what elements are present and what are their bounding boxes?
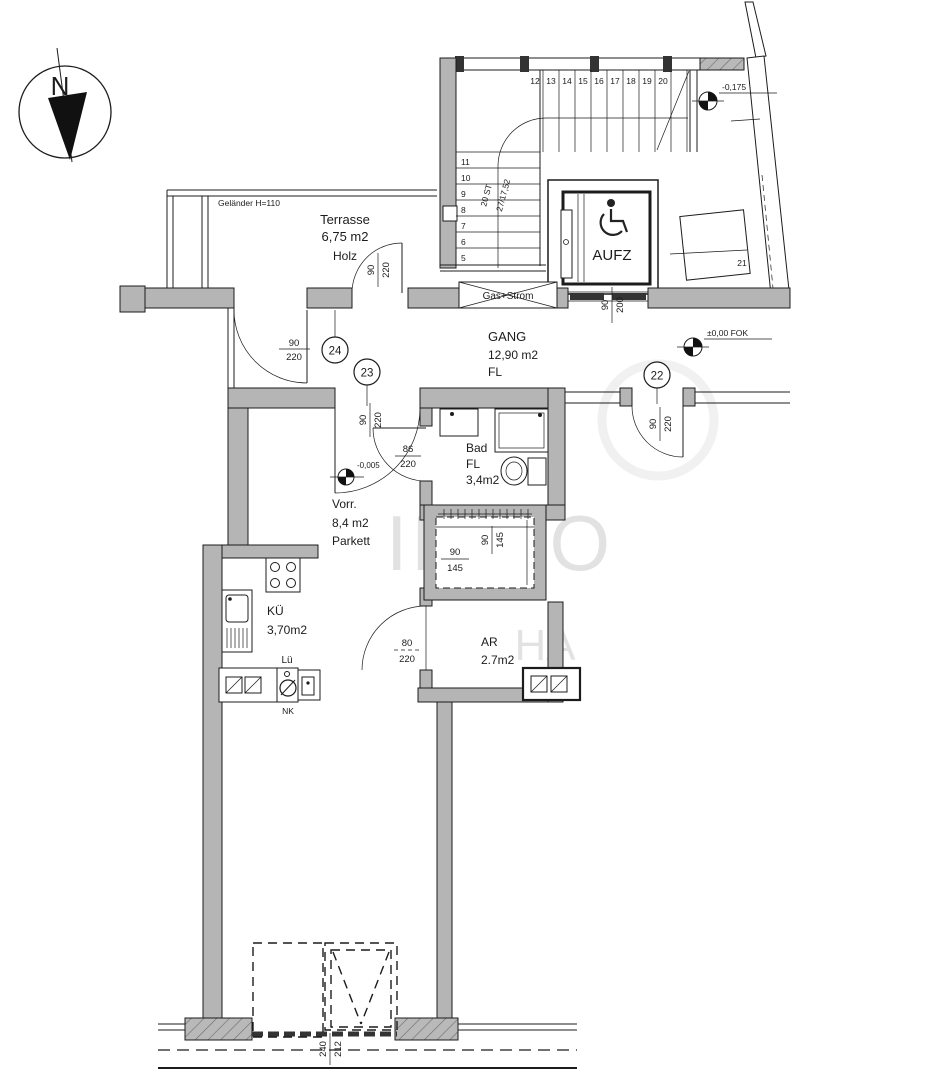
door-24-number: 24 <box>329 346 342 358</box>
stairhall-door-height: 200 <box>615 297 626 313</box>
tread-number: 10 <box>461 173 471 183</box>
railing-label: Geländer H=110 <box>218 198 280 208</box>
door-22-height: 220 <box>663 416 674 432</box>
door-23-width: 90 <box>358 415 369 426</box>
level-vorraum-value: -0,005 <box>357 461 380 470</box>
door-23-height: 220 <box>373 412 384 428</box>
bad-door: 86 220 <box>373 428 426 481</box>
door-23-number: 23 <box>361 368 374 380</box>
terrace-name: Terrasse <box>320 212 370 227</box>
tread-number: 6 <box>461 237 466 247</box>
terrace-door-height: 220 <box>381 262 392 278</box>
door-22-width: 90 <box>648 419 659 430</box>
shaft-window-width-2: 90 <box>480 535 491 546</box>
ar-name: AR <box>481 635 498 649</box>
corridor-top-wall <box>120 286 790 312</box>
left-exterior-wall <box>203 545 222 1018</box>
wall-connector <box>443 206 457 221</box>
tread-number: 8 <box>461 205 466 215</box>
tread-number: 9 <box>461 189 466 199</box>
tread-number: 12 <box>530 76 540 86</box>
bad-door-width: 86 <box>403 444 414 455</box>
floorplan-page: IMMO HA N 21 -0,175 <box>0 0 950 1080</box>
gang-floor: FL <box>488 365 502 379</box>
ar-area: 2.7m2 <box>481 653 515 667</box>
tread-number: 5 <box>461 253 466 263</box>
lower-room-right-wall <box>437 702 452 1018</box>
nk-label: NK <box>282 706 294 716</box>
bad-floor: FL <box>466 457 480 471</box>
shaft-window-height: 145 <box>447 563 463 574</box>
kitchen-sink <box>222 590 252 652</box>
stairwell-left-wall <box>440 58 456 268</box>
level-marker-gang: ±0,00 FOK <box>677 328 772 356</box>
bad-door-height: 220 <box>400 459 416 470</box>
ar-left-post-bottom <box>420 670 432 688</box>
gang-name: GANG <box>488 329 526 344</box>
door-24: 24 90 220 <box>228 308 348 388</box>
elevator-label: AUFZ <box>592 247 631 264</box>
vorraum-area: 8,4 m2 <box>332 516 369 530</box>
level-upper-value: -0,175 <box>722 82 746 92</box>
shaft-window-height-2: 145 <box>495 532 506 548</box>
shaft-window-width: 90 <box>450 547 461 558</box>
vent-label: Lü <box>281 655 292 666</box>
bottom-window-left <box>253 943 323 1037</box>
kitchen: KÜ 3,70m2 Lü NK <box>219 558 320 716</box>
tread-number: 11 <box>461 157 470 167</box>
ar-door-height: 220 <box>399 654 415 665</box>
shaft: 90 145 90 145 <box>424 505 546 600</box>
kitchen-name: KÜ <box>267 604 284 618</box>
gas-strom-cabinet: Gas+Strom <box>459 282 557 308</box>
toilet <box>501 457 546 485</box>
stairwell-top-wall <box>440 56 744 72</box>
north-label: N <box>51 71 70 101</box>
vorraum-floor: Parkett <box>332 534 371 548</box>
vorraum: Vorr. 8,4 m2 Parkett -0,005 <box>330 461 380 548</box>
washbasin <box>440 409 478 436</box>
bottom-window-width: 240 <box>318 1041 329 1057</box>
tread-number: 20 <box>658 76 668 86</box>
vorraum-left-wall <box>228 408 248 548</box>
bottom-window-right <box>325 943 397 1030</box>
bottom-window-height: 212 <box>333 1041 344 1057</box>
door-24-height: 220 <box>286 352 302 363</box>
level-gang-value: ±0,00 FOK <box>707 328 748 338</box>
kitchen-cabinets <box>219 668 320 702</box>
stair-upper-flight: 12 13 14 15 16 17 18 19 20 <box>530 70 697 152</box>
diagonal-wall: 21 <box>670 2 789 295</box>
door-22: 22 90 220 <box>632 362 683 457</box>
gas-strom-label: Gas+Strom <box>483 291 534 302</box>
kitchen-area: 3,70m2 <box>267 623 307 637</box>
gang-area: 12,90 m2 <box>488 348 538 362</box>
tread-number: 18 <box>626 76 636 86</box>
stair-count-note: 20 ST <box>478 183 494 208</box>
bad-right-wall <box>548 388 565 520</box>
tread-number: 7 <box>461 221 466 231</box>
stairhall-door-width: 90 <box>600 300 611 311</box>
tread-number: 17 <box>610 76 620 86</box>
terrace-floor: Holz <box>333 249 357 263</box>
tread-number: 16 <box>594 76 604 86</box>
watermark-text-2: HA <box>514 621 576 670</box>
stair-step-note: 27/17,52 <box>494 178 512 213</box>
bad-room: Bad FL 3,4m2 <box>440 409 548 487</box>
terrace-door-width: 90 <box>366 265 377 276</box>
door-22-number: 22 <box>651 371 664 383</box>
unit-21-label: 21 <box>737 258 747 268</box>
terrace: Geländer H=110 Terrasse 6,75 m2 Holz <box>167 190 437 288</box>
terrace-area: 6,75 m2 <box>322 229 369 244</box>
door-24-width: 90 <box>289 338 300 349</box>
stove <box>266 558 300 592</box>
ar-door-width: 80 <box>402 638 413 649</box>
terrace-door: 90 220 <box>352 243 402 293</box>
tread-number: 19 <box>642 76 652 86</box>
tread-number: 13 <box>546 76 556 86</box>
elevator: AUFZ <box>548 180 658 294</box>
north-compass: N <box>19 48 111 162</box>
tread-number: 14 <box>562 76 572 86</box>
bad-area: 3,4m2 <box>466 473 500 487</box>
floorplan-drawing: IMMO HA N 21 -0,175 <box>0 0 950 1080</box>
bad-left-wall-lower <box>420 481 432 505</box>
vorraum-name: Vorr. <box>332 497 357 511</box>
gang-corridor: GANG 12,90 m2 FL <box>488 329 538 379</box>
tread-number: 15 <box>578 76 588 86</box>
bad-left-wall-upper <box>420 408 432 426</box>
ar-cabinet <box>523 668 580 700</box>
bad-name: Bad <box>466 441 487 455</box>
